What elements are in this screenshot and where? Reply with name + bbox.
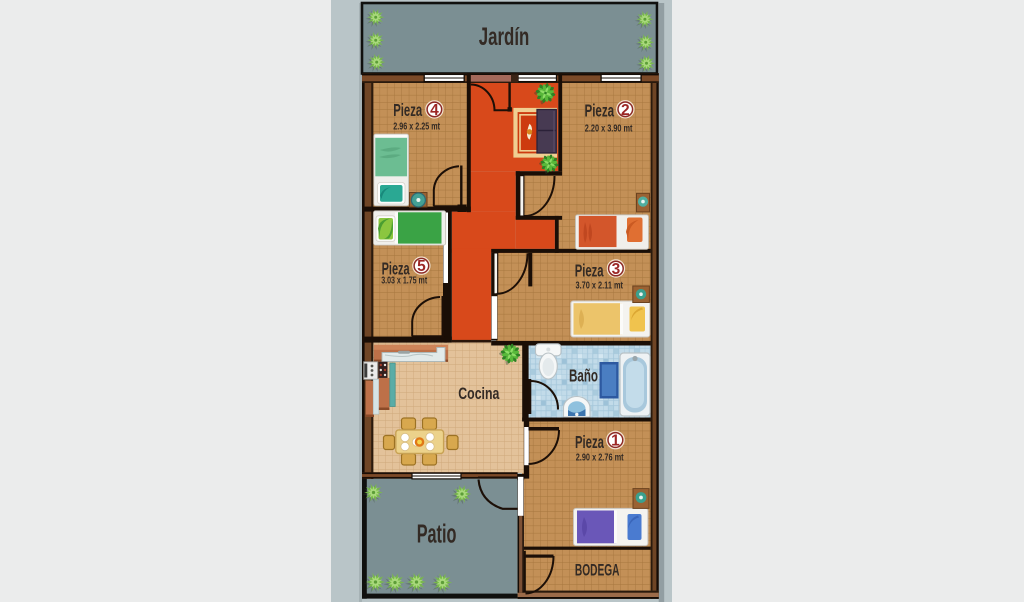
svg-text:3.03 x 1.75 mt: 3.03 x 1.75 mt	[381, 276, 427, 287]
svg-text:Pieza: Pieza	[575, 432, 604, 452]
svg-text:3.70 x 2.11 mt: 3.70 x 2.11 mt	[576, 281, 624, 292]
svg-text:2.90 x 2.76 mt: 2.90 x 2.76 mt	[576, 453, 624, 464]
svg-text:2.20 x 3.90 mt: 2.20 x 3.90 mt	[585, 124, 633, 135]
svg-text:Pieza: Pieza	[575, 261, 604, 281]
svg-text:4: 4	[430, 102, 439, 119]
svg-text:2.96 x 2.25 mt: 2.96 x 2.25 mt	[393, 122, 440, 133]
svg-text:Cocina: Cocina	[458, 384, 499, 403]
svg-text:Pieza: Pieza	[585, 101, 615, 121]
svg-text:Pieza: Pieza	[393, 100, 422, 120]
svg-text:Jardín: Jardín	[479, 23, 530, 51]
svg-text:5: 5	[417, 258, 426, 275]
svg-text:3: 3	[612, 261, 621, 278]
svg-text:BODEGA: BODEGA	[575, 560, 620, 579]
svg-text:Patio: Patio	[417, 521, 457, 549]
svg-text:Baño: Baño	[569, 366, 598, 386]
svg-text:2: 2	[621, 102, 630, 119]
svg-text:1: 1	[611, 433, 620, 450]
